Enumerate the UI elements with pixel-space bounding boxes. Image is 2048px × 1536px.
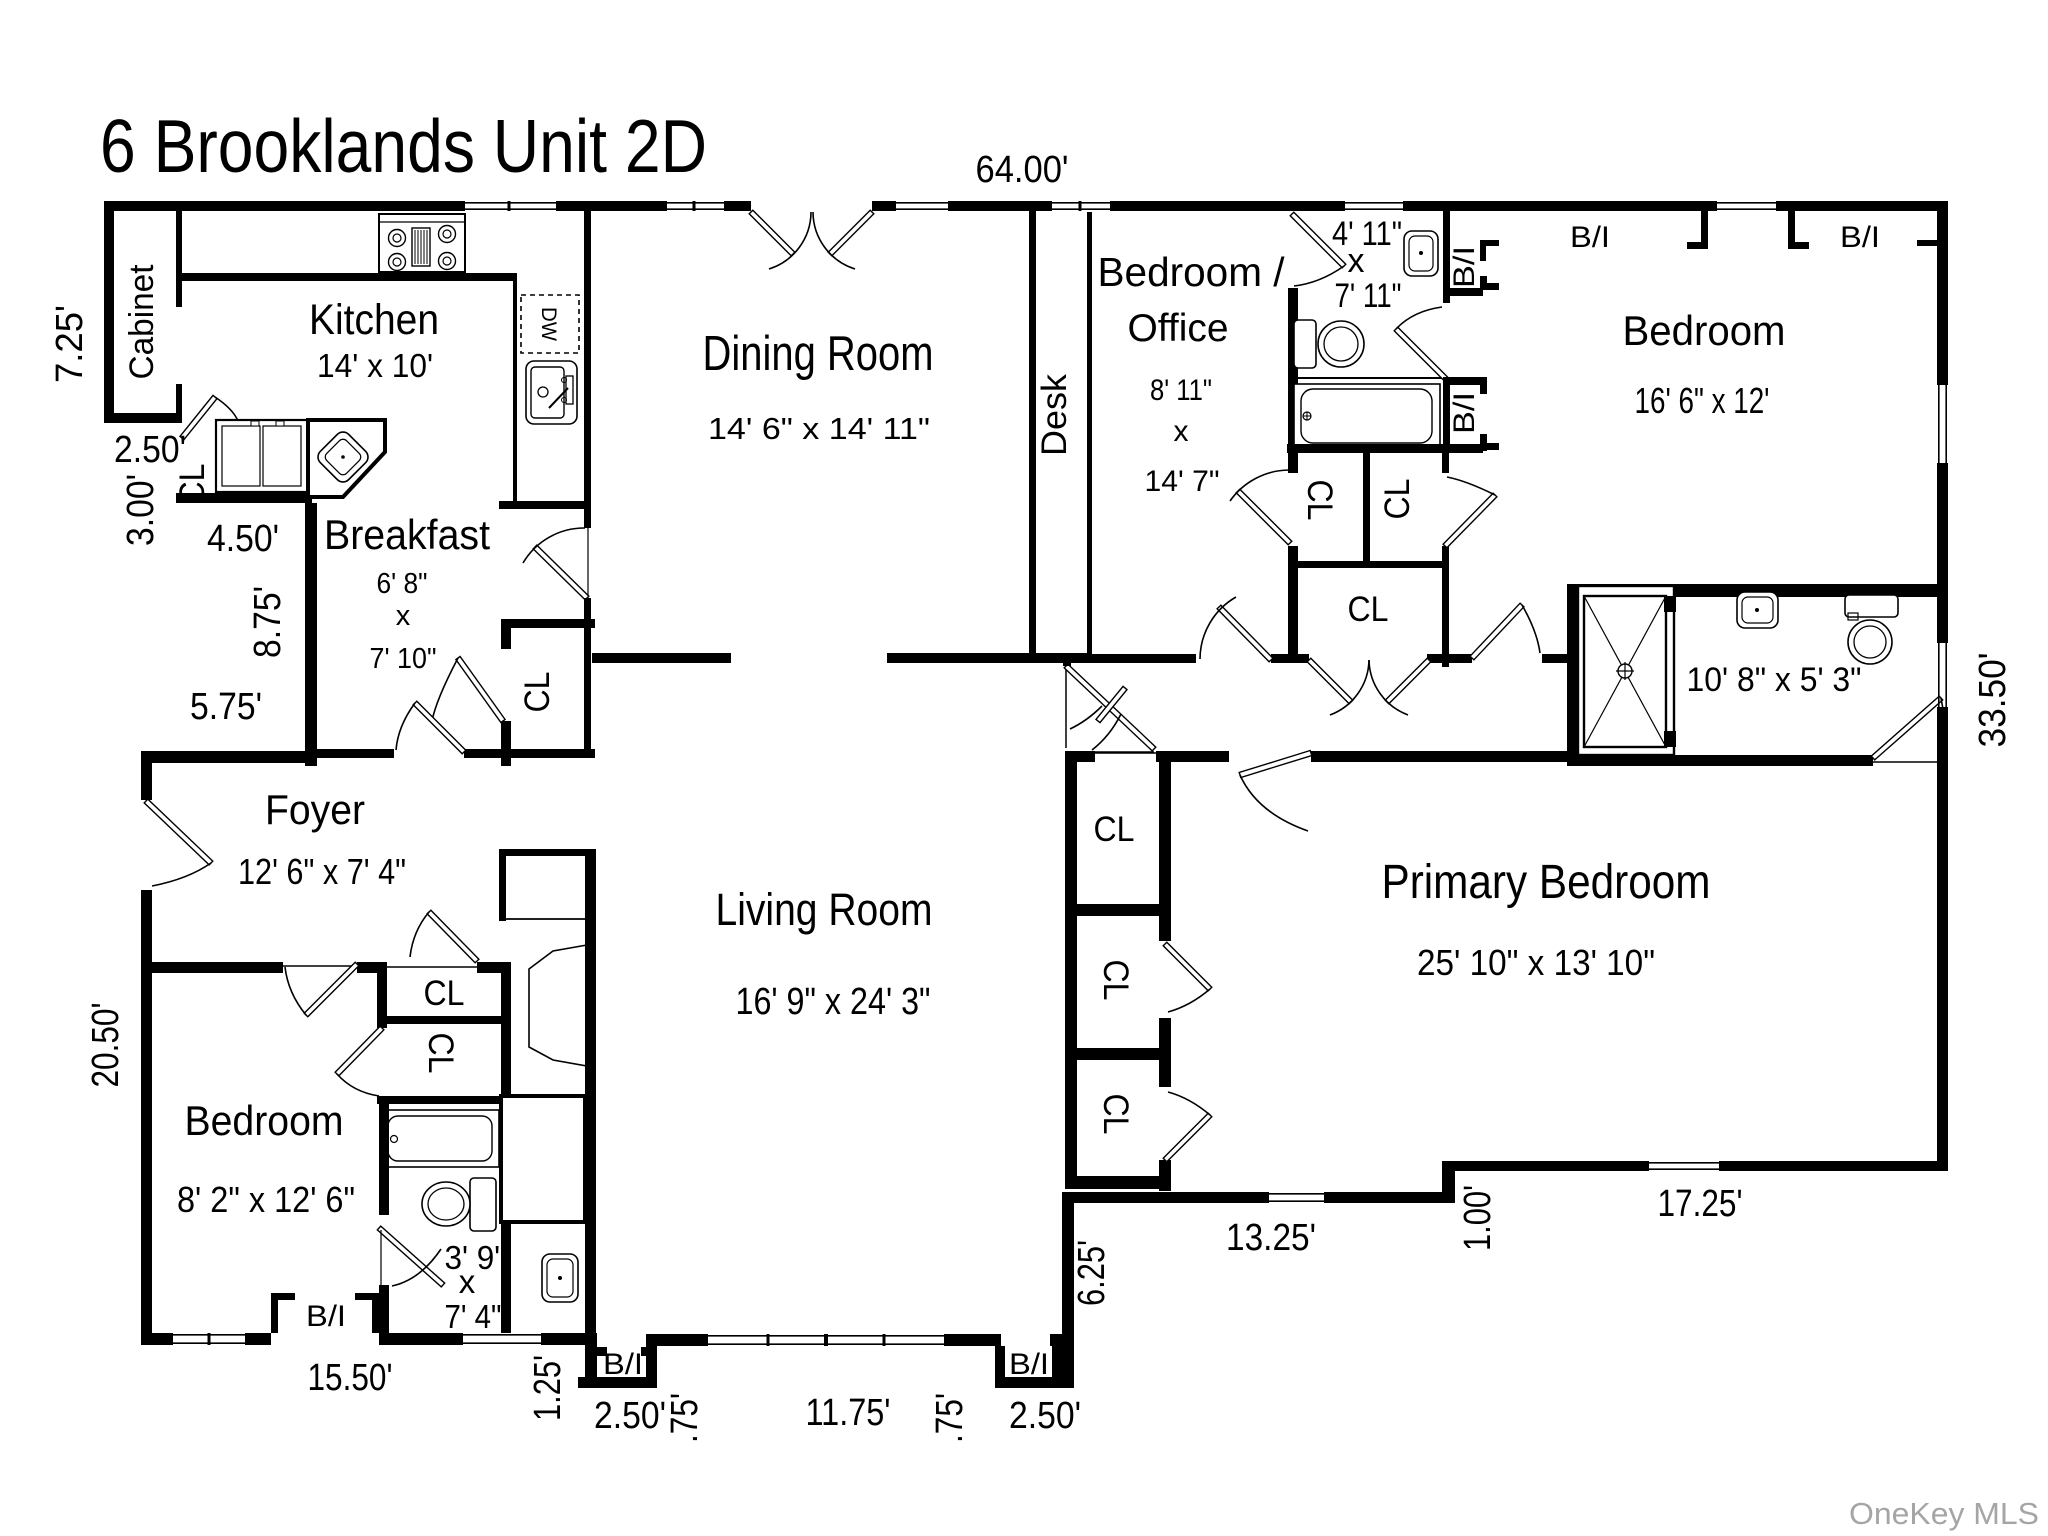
svg-text:10' 8" x 5' 3": 10' 8" x 5' 3" [1687,661,1862,699]
svg-text:33.50': 33.50' [1972,653,2014,748]
svg-text:B/I: B/I [1570,221,1610,254]
svg-text:11.75': 11.75' [806,1392,891,1434]
svg-text:6' 8": 6' 8" [377,568,428,600]
svg-text:Bedroom /: Bedroom / [1098,249,1286,295]
svg-text:14' 6" x 14' 11": 14' 6" x 14' 11" [708,411,930,446]
svg-text:B/I: B/I [1840,221,1880,254]
svg-text:20.50': 20.50' [85,1003,127,1088]
svg-text:Kitchen: Kitchen [309,296,439,344]
svg-text:25' 10" x 13' 10": 25' 10" x 13' 10" [1417,942,1655,983]
svg-text:2.50': 2.50' [1009,1395,1081,1437]
svg-text:16' 9" x 24' 3": 16' 9" x 24' 3" [736,981,931,1023]
svg-text:Bedroom: Bedroom [185,1097,344,1144]
svg-text:Dining Room: Dining Room [703,327,934,381]
svg-text:CL: CL [424,974,465,1013]
svg-text:B/I: B/I [603,1348,643,1381]
svg-text:x: x [1174,415,1189,448]
svg-text:Bedroom: Bedroom [1623,307,1786,354]
svg-text:Primary Bedroom: Primary Bedroom [1382,856,1711,909]
svg-text:7' 4": 7' 4" [445,1298,502,1335]
svg-text:CL: CL [1300,480,1339,521]
svg-text:5.75': 5.75' [190,686,262,728]
svg-text:Desk: Desk [1035,373,1074,456]
svg-text:B/I: B/I [1448,246,1481,288]
svg-text:OneKey MLS: OneKey MLS [1849,1496,2039,1531]
svg-text:CL: CL [421,1033,460,1074]
svg-text:Breakfast: Breakfast [324,511,490,558]
svg-text:CL: CL [1348,590,1389,629]
svg-text:Cabinet: Cabinet [123,264,161,380]
svg-text:CL: CL [1094,810,1135,849]
svg-text:CL: CL [1096,960,1135,1001]
svg-text:B/I: B/I [1448,392,1481,434]
svg-text:64.00': 64.00' [976,149,1069,191]
svg-text:6.25': 6.25' [1071,1240,1113,1306]
svg-text:B/I: B/I [1009,1348,1049,1381]
svg-text:2.50': 2.50' [594,1395,666,1437]
svg-text:14' 7": 14' 7" [1145,465,1220,498]
svg-text:15.50': 15.50' [308,1357,393,1399]
svg-text:16' 6" x 12': 16' 6" x 12' [1635,380,1770,421]
svg-text:7.25': 7.25' [49,305,91,383]
svg-text:CL: CL [1378,479,1417,520]
svg-text:7' 11": 7' 11" [1335,277,1402,315]
svg-text:x: x [1348,242,1365,280]
svg-text:DW: DW [537,307,560,341]
svg-text:.75': .75' [664,1393,706,1443]
svg-text:B/I: B/I [306,1300,346,1333]
svg-text:x: x [459,1263,476,1300]
svg-text:1.25': 1.25' [527,1355,569,1421]
svg-text:Foyer: Foyer [265,786,365,833]
svg-text:x: x [396,600,411,632]
svg-text:3.00': 3.00' [120,474,162,546]
svg-text:17.25': 17.25' [1658,1183,1743,1225]
svg-text:13.25': 13.25' [1226,1217,1316,1259]
svg-text:4.50': 4.50' [207,518,279,560]
svg-text:8' 2" x 12' 6": 8' 2" x 12' 6" [177,1179,355,1220]
svg-text:2.50': 2.50' [114,429,186,471]
svg-text:Living Room: Living Room [716,884,933,935]
svg-text:7' 10": 7' 10" [370,643,437,675]
svg-text:8' 11": 8' 11" [1150,374,1212,407]
svg-text:14' x 10': 14' x 10' [317,347,433,384]
svg-text:CL: CL [1096,1094,1135,1135]
svg-text:8.75': 8.75' [247,586,289,658]
svg-text:Office: Office [1128,307,1229,350]
svg-text:.75': .75' [929,1393,971,1443]
svg-text:1.00': 1.00' [1457,1185,1499,1251]
svg-text:6 Brooklands Unit 2D: 6 Brooklands Unit 2D [100,104,707,188]
svg-text:CL: CL [518,672,557,713]
svg-text:4' 11": 4' 11" [1332,215,1402,253]
svg-text:12' 6" x 7' 4": 12' 6" x 7' 4" [238,851,406,892]
